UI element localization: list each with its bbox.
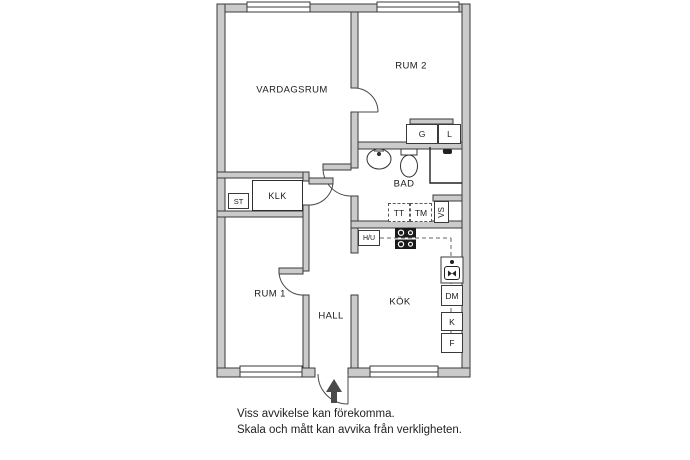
room-label-hall: HALL	[318, 311, 343, 322]
appliance-hu: H/U	[358, 230, 380, 246]
window-kok	[370, 366, 438, 377]
appliance-dm: DM	[441, 285, 463, 306]
appliance-k: K	[441, 312, 463, 331]
room-label-bad: BAD	[394, 179, 415, 190]
room-label-rum2: RUM 2	[395, 61, 427, 72]
door-klk	[309, 178, 333, 205]
closet-g: G	[406, 124, 438, 144]
window-vardagsrum	[247, 2, 310, 12]
room-label-rum1: RUM 1	[254, 289, 286, 300]
disclaimer-line-2: Skala och mått kan avvika från verklighe…	[237, 424, 462, 436]
window-rum2	[377, 2, 459, 12]
appliance-tm: TM	[410, 203, 432, 222]
toilet-icon	[401, 149, 418, 177]
floorplan-page: VARDAGSRUM RUM 2 BAD RUM 1 HALL KÖK KLK …	[0, 0, 690, 460]
appliance-vs: VS	[434, 201, 449, 223]
entrance-arrow-icon	[326, 379, 342, 403]
stove-icon	[395, 228, 416, 249]
room-label-kok: KÖK	[389, 297, 410, 308]
window-rum1	[240, 366, 302, 377]
room-label-vardagsrum: VARDAGSRUM	[256, 85, 327, 96]
doors	[279, 88, 378, 404]
disclaimer-line-1: Viss avvikelse kan förekomma.	[237, 408, 395, 420]
kitchen-sink-icon	[441, 257, 463, 283]
floorplan-drawing	[0, 0, 690, 460]
door-rum2	[354, 88, 378, 112]
appliance-f: F	[441, 333, 463, 353]
shower-icon	[430, 147, 462, 183]
appliance-tt: TT	[388, 203, 410, 222]
sink-icon	[367, 149, 391, 169]
bathroom-fixtures	[367, 147, 462, 183]
closet-st: ST	[228, 193, 249, 209]
closet-klk: KLK	[252, 180, 303, 211]
vs-label: VS	[437, 207, 446, 218]
closet-l: L	[438, 124, 461, 144]
